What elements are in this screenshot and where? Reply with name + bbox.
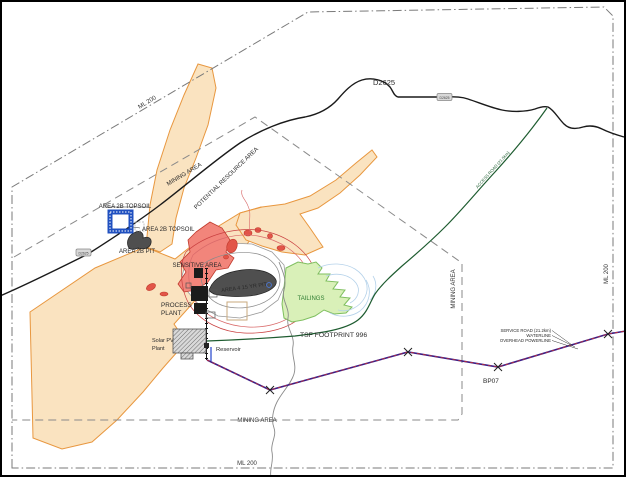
area-2b-topsoil-label-1: AREA 2B TOPSOIL	[99, 204, 152, 210]
site-map-svg: D2625 D2625 ML 200 MINING AREA POTENTIAL…	[0, 0, 626, 477]
solar-pv-label-line2: Plant	[152, 346, 165, 352]
sensitive-area-label: SENSITIVE AREA	[172, 263, 221, 269]
solar-pv-label-line1: Solar PV	[152, 338, 174, 344]
d2625-road-label: D2625	[373, 78, 395, 87]
bp07-label: BP07	[483, 378, 499, 385]
reservoir-label: Reservoir	[216, 347, 241, 353]
road-badge-west-label: D2625	[79, 252, 89, 256]
tailings-label: TAILINGS	[298, 296, 325, 302]
ml200-label-east: ML 200	[604, 263, 610, 283]
road-badge-north-label: D2625	[440, 96, 450, 100]
area-2b-pit-label: AREA 2B PIT	[119, 249, 155, 255]
process-plant-label-line2: PLANT	[161, 310, 181, 317]
tsf-footprint-label: TSF FOOTPRINT 996	[300, 332, 367, 339]
process-plant-label-line1: PROCESS	[161, 302, 192, 309]
overhead-powerline-label: OVERHEAD POWERLINE	[500, 338, 551, 343]
area-2b-topsoil-label-2: AREA 2B TOPSOIL	[142, 227, 195, 233]
road-badge-north: D2625	[437, 94, 452, 101]
mining-area-label-south: MINING AREA	[237, 418, 276, 424]
road-badge-west: D2625	[76, 249, 91, 256]
ml200-label-south: ML 200	[237, 461, 257, 467]
mining-area-label-east: MINING AREA	[451, 269, 457, 308]
site-map-canvas: D2625 D2625 ML 200 MINING AREA POTENTIAL…	[0, 0, 626, 477]
